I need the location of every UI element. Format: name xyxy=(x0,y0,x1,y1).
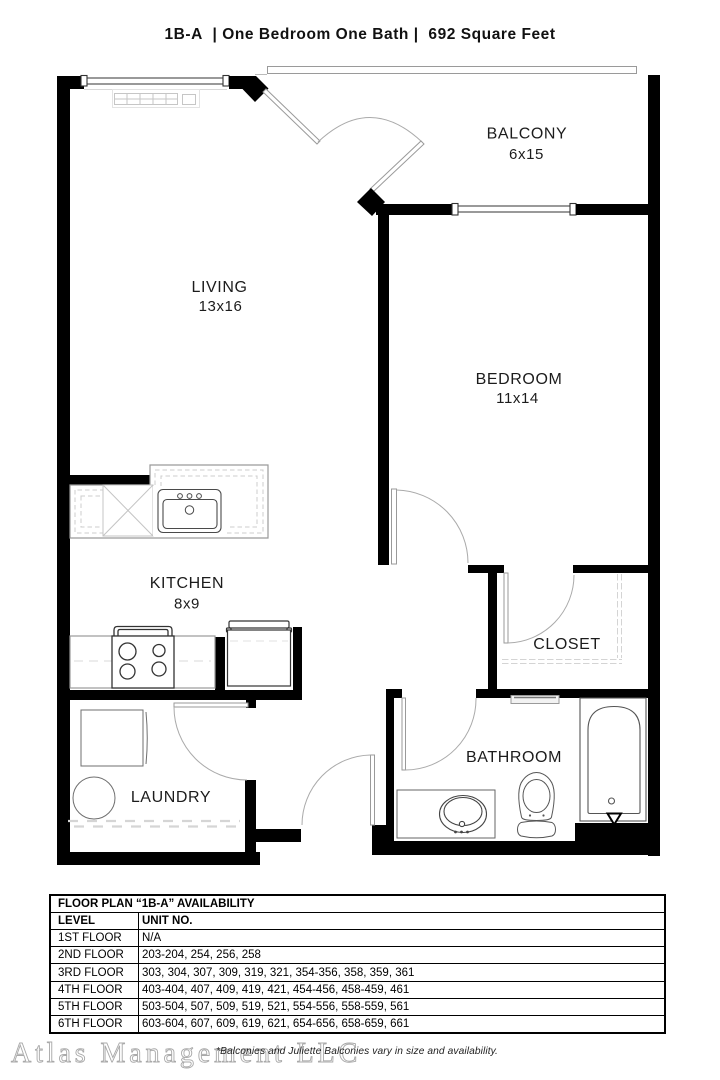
svg-text:13x16: 13x16 xyxy=(199,298,243,315)
svg-text:BEDROOM: BEDROOM xyxy=(476,371,563,388)
svg-text:CLOSET: CLOSET xyxy=(533,636,601,653)
svg-text:BATHROOM: BATHROOM xyxy=(466,749,562,766)
svg-text:LAUNDRY: LAUNDRY xyxy=(131,789,211,806)
svg-text:8x9: 8x9 xyxy=(174,596,200,613)
svg-text:6x15: 6x15 xyxy=(509,146,544,163)
svg-text:BALCONY: BALCONY xyxy=(487,126,568,143)
svg-text:LIVING: LIVING xyxy=(191,279,247,296)
svg-text:11x14: 11x14 xyxy=(496,390,539,407)
svg-text:KITCHEN: KITCHEN xyxy=(150,575,224,592)
